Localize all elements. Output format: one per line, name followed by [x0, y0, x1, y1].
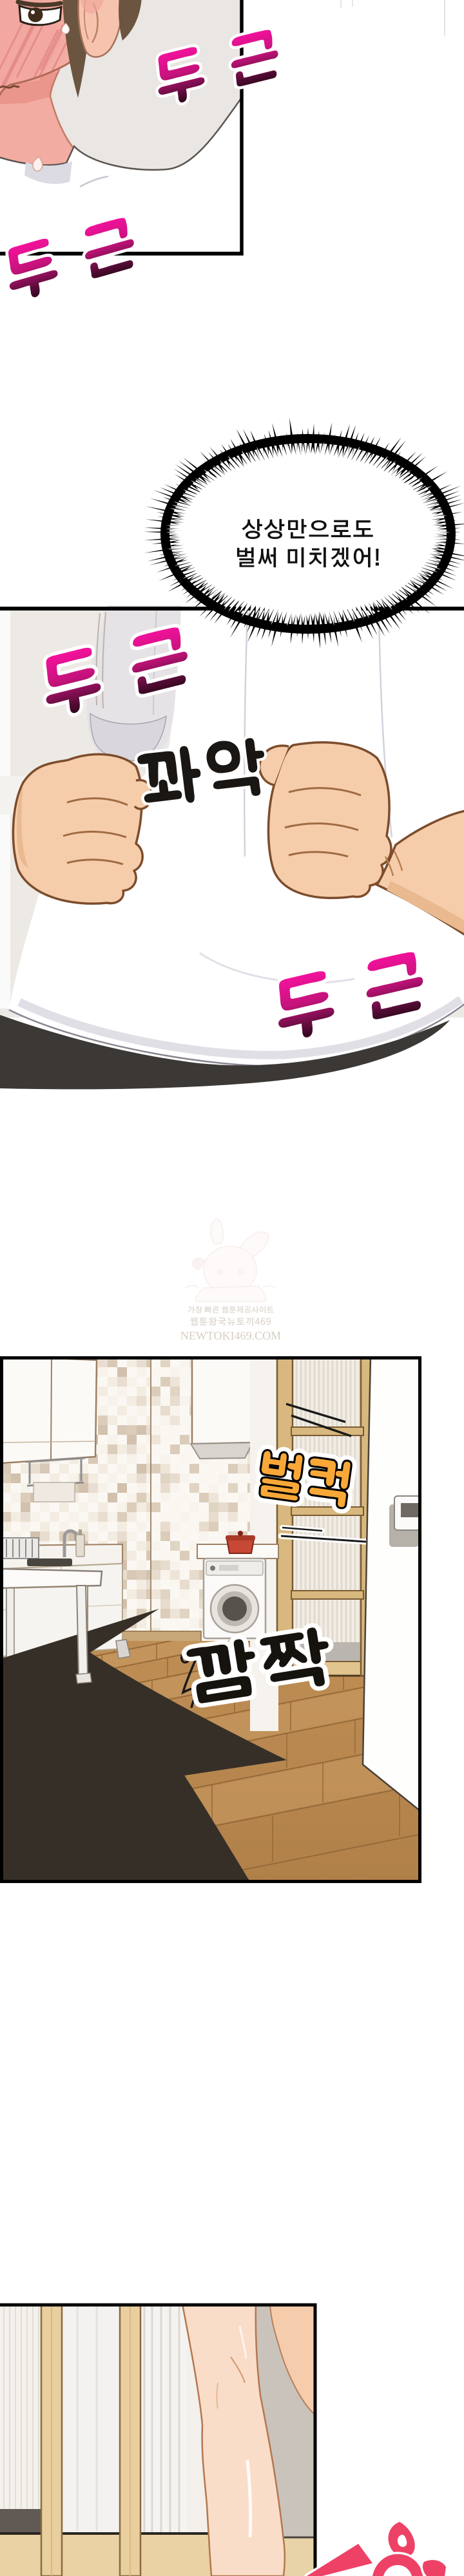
svg-text:NEWTOKI469.COM: NEWTOKI469.COM: [180, 1329, 281, 1342]
